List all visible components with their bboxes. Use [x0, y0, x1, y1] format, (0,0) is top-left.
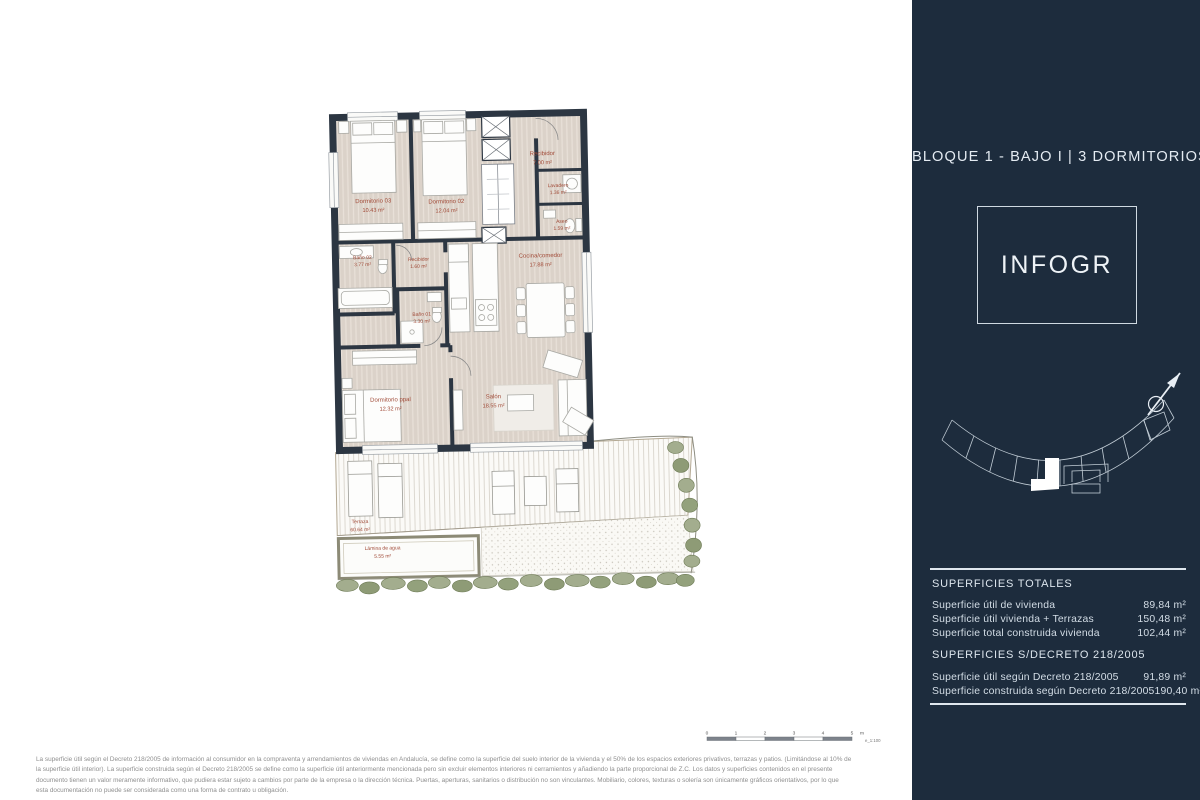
scale-tick: 1: [735, 731, 738, 737]
disclaimer-line: la superficie útil interior). La superfi…: [36, 765, 898, 775]
room-area: 60.64 m²: [350, 527, 370, 533]
room-area: 18.55 m²: [483, 403, 505, 409]
surface-label: Superficie total construida vivienda: [932, 628, 1100, 639]
room-label: Baño 01: [412, 312, 431, 318]
disclaimer-line: documento tienen un valor meramente info…: [36, 776, 898, 786]
room-label: Terraza: [352, 519, 369, 525]
room-area: 5.55 m²: [374, 553, 391, 559]
room-label: Recibidor: [408, 257, 430, 263]
swimming-pool: [338, 536, 479, 579]
room-label: Dormitorio 02: [428, 199, 465, 206]
surface-label: Superficie útil vivienda + Terrazas: [932, 614, 1094, 625]
surface-label: Superficie construida según Decreto 218/…: [932, 686, 1155, 697]
sidebar: BLOQUE 1 - BAJO I | 3 DORMITORIOS INFOGR: [912, 0, 1200, 800]
room-label: Dormitorio ppal: [370, 397, 411, 404]
disclaimer: La superficie útil según el Decreto 218/…: [36, 755, 898, 797]
page: Dormitorio 03 10.43 m² Dormitorio 02 12.…: [0, 0, 1200, 800]
room-label: Baño 02: [353, 255, 372, 261]
scale-unit: m: [860, 732, 864, 737]
room-label: Salón: [486, 394, 501, 400]
surface-row: Superficie útil de vivienda 89,84 m²: [932, 600, 1186, 611]
north-arrow-icon: [1148, 373, 1180, 415]
room-label: Cocina/comedor: [519, 253, 563, 260]
scale-tick: 2: [764, 731, 767, 737]
scale-ratio: e_1:100: [865, 738, 881, 743]
room-area: 3.77 m²: [354, 262, 371, 268]
scale-bar: 0 1 2 3 4 5 m e_1:100: [706, 731, 881, 744]
disclaimer-line: La superficie útil según el Decreto 218/…: [36, 755, 898, 765]
room-area: 1.36 m²: [550, 190, 567, 196]
scale-tick: 0: [706, 731, 709, 737]
room-area: 10.43 m²: [362, 208, 384, 214]
surface-value: 91,89 m²: [1143, 672, 1186, 683]
room-label: Lavadero: [548, 183, 569, 189]
page-title: BLOQUE 1 - BAJO I | 3 DORMITORIOS: [912, 149, 1200, 165]
room-area: 7.00 m²: [533, 160, 552, 166]
floor-plan-drawing: Dormitorio 03 10.43 m² Dormitorio 02 12.…: [0, 0, 912, 800]
disclaimer-line: esta documentación no puede ser consider…: [36, 786, 898, 796]
surface-row: Superficie total construida vivienda 102…: [932, 628, 1186, 639]
decreto-heading: SUPERFICIES S/DECRETO 218/2005: [932, 649, 1145, 661]
room-area: 12.04 m²: [435, 208, 457, 214]
room-area: 1.60 m²: [410, 264, 427, 270]
surface-value: 102,44 m²: [1137, 628, 1186, 639]
surface-row: Superficie útil según Decreto 218/2005 9…: [932, 672, 1186, 683]
divider: [930, 568, 1186, 570]
room-label: Dormitorio 03: [355, 198, 392, 205]
brand-logo: INFOGR: [977, 206, 1137, 324]
room-area: 3.30 m²: [413, 319, 430, 325]
room-label: Recibidor: [530, 151, 555, 158]
site-location-map: [912, 358, 1200, 570]
room-area: 1.59 m²: [553, 226, 570, 232]
scale-tick: 3: [793, 731, 796, 737]
highlighted-unit-marker: [1031, 458, 1059, 491]
surface-value: 190,40 m²: [1155, 686, 1200, 697]
totals-heading: SUPERFICIES TOTALES: [932, 578, 1073, 590]
surface-label: Superficie útil de vivienda: [932, 600, 1055, 611]
surface-value: 150,48 m²: [1137, 614, 1186, 625]
decreto-table: Superficie útil según Decreto 218/2005 9…: [932, 672, 1186, 700]
room-area: 12.32 m²: [380, 406, 402, 412]
totals-table: Superficie útil de vivienda 89,84 m² Sup…: [932, 600, 1186, 642]
surface-row: Superficie construida según Decreto 218/…: [932, 686, 1186, 697]
divider: [930, 703, 1186, 705]
surface-row: Superficie útil vivienda + Terrazas 150,…: [932, 614, 1186, 625]
room-label: Aseo: [556, 219, 568, 225]
room-area: 17.88 m²: [530, 262, 552, 268]
brand-logo-text: INFOGR: [1001, 251, 1113, 280]
scale-tick: 4: [822, 731, 825, 737]
surface-label: Superficie útil según Decreto 218/2005: [932, 672, 1119, 683]
room-label: Lámina de agua: [365, 545, 401, 552]
scale-tick: 5: [851, 731, 854, 737]
surface-value: 89,84 m²: [1143, 600, 1186, 611]
